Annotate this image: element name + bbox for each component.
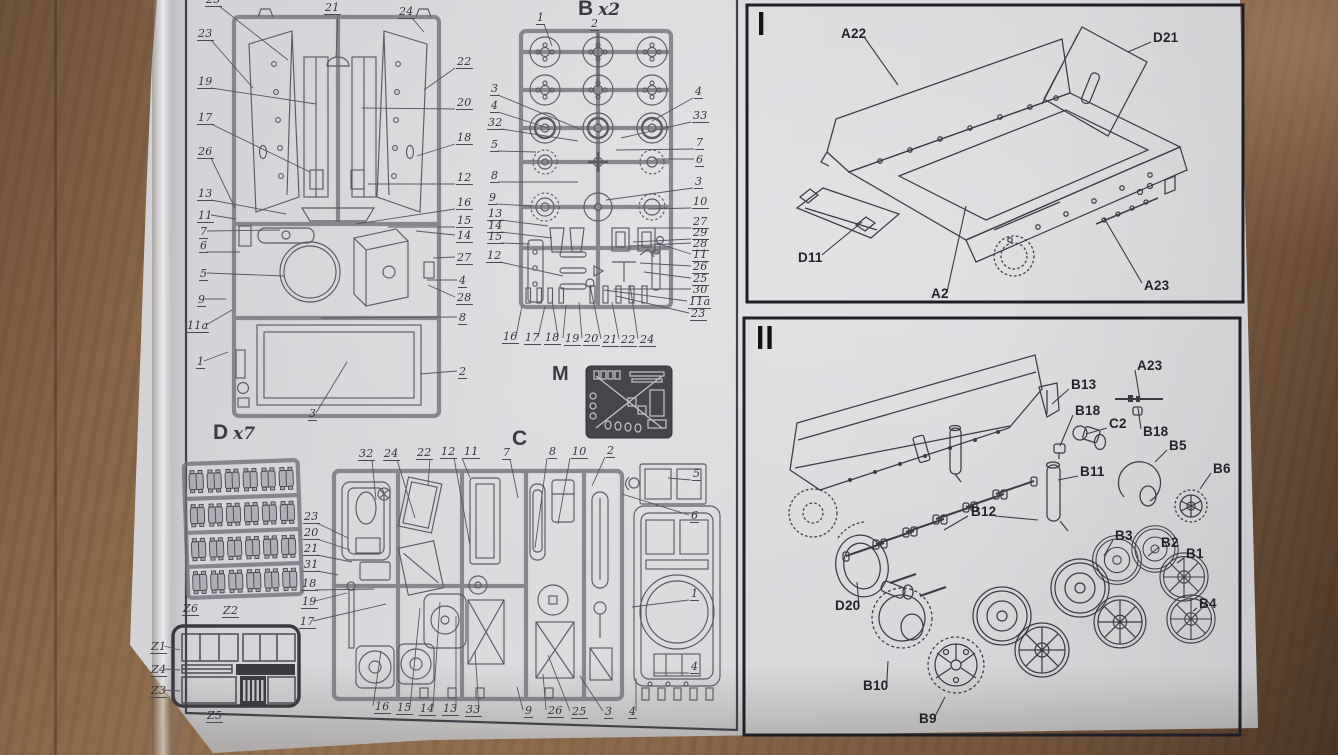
sprue-d-title: D x7: [213, 422, 255, 444]
etch-m-title: M: [552, 364, 569, 384]
sprue-b-title: B x2: [578, 0, 620, 20]
step-2-numeral: II: [756, 322, 775, 356]
paper-edge-shadow: [0, 0, 1338, 755]
sprue-c-letter: C: [512, 428, 527, 449]
step-1-numeral: I: [757, 8, 766, 42]
wood-seam-line: [54, 0, 57, 755]
photo-scene: B x2 D x7 C M I II 252124231917261311765…: [0, 0, 1338, 755]
etch-m-letter: M: [552, 364, 569, 384]
sprue-d-letter: D: [213, 422, 228, 443]
sprue-d-multiplier: x7: [233, 424, 255, 444]
sprue-b-letter: B: [578, 0, 593, 19]
sprue-c-title: C: [512, 428, 527, 449]
sprue-b-multiplier: x2: [598, 0, 620, 20]
